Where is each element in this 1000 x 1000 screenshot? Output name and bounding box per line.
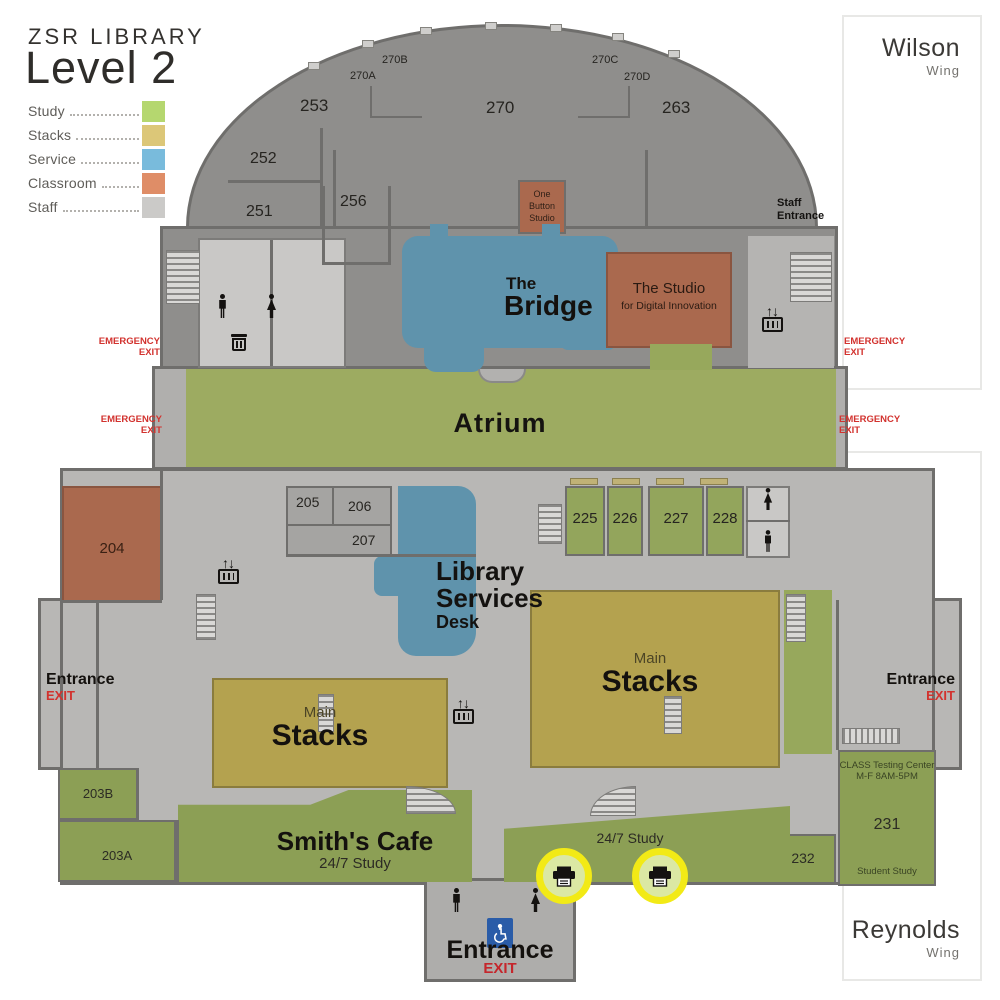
stairs (166, 250, 200, 304)
wall (333, 150, 336, 228)
legend: Study Stacks Service Classroom Staff (28, 99, 165, 219)
window-sill (570, 478, 598, 485)
atrium-label: Atrium (430, 408, 570, 439)
wall (62, 600, 162, 603)
wall (322, 186, 325, 264)
room-203a-label: 203A (58, 848, 176, 863)
legend-label: Staff (28, 199, 58, 215)
legend-leader (63, 202, 139, 212)
emergency-exit-label: EMERGENCY EXIT (60, 336, 160, 358)
room-270-label: 270 (486, 98, 514, 118)
room-270b-label: 270B (382, 54, 408, 66)
library-services-label: Library Services Desk (436, 558, 543, 633)
fountain (478, 369, 526, 383)
woman-icon (265, 294, 278, 323)
wall (746, 520, 790, 522)
room-270d-label: 270D (624, 71, 650, 83)
stairs (538, 504, 562, 544)
legend-swatch-service (142, 149, 165, 170)
legend-leader (102, 178, 139, 188)
room-253-label: 253 (300, 96, 328, 116)
legend-swatch-stacks (142, 125, 165, 146)
east-entrance-label: Entrance (835, 671, 955, 689)
west-entrance-label: Entrance (46, 671, 114, 689)
legend-item-stacks: Stacks (28, 123, 165, 147)
wall (370, 116, 422, 118)
room-227-label: 227 (648, 510, 704, 527)
legend-item-study: Study (28, 99, 165, 123)
library-services-desk-area (374, 556, 400, 596)
woman-icon (762, 488, 774, 515)
window-sill (656, 478, 684, 485)
legend-swatch-study (142, 101, 165, 122)
wall (628, 86, 630, 118)
cafe-247-study-label: 24/7 Study (240, 855, 470, 872)
room-256-label: 256 (340, 193, 367, 211)
wall (370, 86, 372, 118)
one-button-studio-label: One Button Studio (518, 188, 566, 224)
main-stacks-east-label: Main Stacks (570, 650, 730, 697)
man-icon (763, 530, 773, 557)
man-icon (451, 888, 462, 917)
wall (332, 488, 334, 524)
studio-label: The Studio for Digital Innovation (606, 280, 732, 312)
legend-swatch-classroom (142, 173, 165, 194)
room-204-label: 204 (62, 540, 162, 557)
room-232-label: 232 (770, 850, 836, 866)
bridge-area (424, 336, 484, 372)
printer-icon (648, 866, 672, 887)
room-225-label: 225 (565, 510, 605, 527)
wilson-wing-label: Wilson Wing (842, 34, 960, 78)
emergency-exit-label: EMERGENCY EXIT (62, 414, 162, 436)
window-sill (612, 33, 624, 41)
recycling-bin-icon (231, 334, 247, 351)
printer-station (536, 848, 592, 904)
room-206-label: 206 (348, 498, 371, 514)
wall (388, 186, 391, 264)
legend-swatch-staff (142, 197, 165, 218)
wall (322, 262, 391, 265)
green-patch (650, 344, 712, 370)
elevator-icon: ↑↓ (215, 558, 241, 584)
printer-station (632, 848, 688, 904)
window-sill (700, 478, 728, 485)
wall (160, 468, 163, 600)
elevator-icon: ↑↓ (450, 698, 476, 724)
room-203b-label: 203B (58, 786, 138, 801)
printer-icon (552, 866, 576, 887)
stairs (664, 696, 682, 734)
smiths-cafe-label: Smith's Cafe (240, 826, 470, 857)
emergency-exit-label: EMERGENCY EXIT (839, 414, 939, 436)
study-247-label: 24/7 Study (560, 830, 700, 846)
legend-label: Stacks (28, 127, 71, 143)
woman-icon (529, 888, 542, 917)
window-sill (612, 478, 640, 485)
legend-label: Service (28, 151, 76, 167)
window-sill (485, 22, 497, 30)
room-270a-label: 270A (350, 70, 376, 82)
student-study-label: Student Study (838, 866, 936, 877)
legend-label: Study (28, 103, 65, 119)
bridge-label-bridge: Bridge (504, 290, 593, 322)
bridge-area (430, 224, 448, 238)
reynolds-wing-label: Reynolds Wing (842, 916, 960, 960)
west-exit-label: EXIT (46, 688, 75, 703)
room-207-label: 207 (352, 532, 375, 548)
stairs (842, 728, 900, 744)
room-231-label: 231 (838, 816, 936, 834)
window-sill (668, 50, 680, 58)
window-sill (362, 40, 374, 48)
window-sill (308, 62, 320, 70)
elevator-icon: ↑↓ (759, 306, 785, 332)
wall (645, 150, 648, 228)
emergency-exit-label: EMERGENCY EXIT (844, 336, 944, 358)
wall (288, 524, 390, 526)
legend-leader (81, 154, 139, 164)
wilson-dome (186, 24, 818, 230)
window-sill (550, 24, 562, 32)
wall (176, 820, 179, 882)
room-226-label: 226 (607, 510, 643, 527)
floorplan-map: ZSR LIBRARY Level 2 Study Stacks Service… (0, 0, 1000, 1000)
man-icon (217, 294, 228, 323)
legend-item-classroom: Classroom (28, 171, 165, 195)
page-subtitle: Level 2 (25, 42, 177, 94)
wall (228, 180, 322, 183)
window-sill (420, 27, 432, 35)
room-270c-label: 270C (592, 54, 618, 66)
room-263-label: 263 (662, 98, 690, 118)
legend-item-service: Service (28, 147, 165, 171)
room-205-label: 205 (296, 494, 319, 510)
south-exit-label: EXIT (420, 960, 580, 977)
legend-item-staff: Staff (28, 195, 165, 219)
legend-leader (76, 130, 139, 140)
legend-leader (70, 106, 139, 116)
main-stacks-west-label: Main Stacks (240, 704, 400, 751)
room-252-label: 252 (250, 150, 277, 168)
testing-center-label: CLASS Testing Center M-F 8AM-5PM (838, 760, 936, 782)
legend-label: Classroom (28, 175, 97, 191)
room-251-label: 251 (246, 203, 273, 221)
wall (578, 116, 630, 118)
staff-entrance-label: Staff Entrance (777, 197, 824, 223)
room-228-label: 228 (706, 510, 744, 527)
stairs (786, 594, 806, 642)
stairs (790, 252, 832, 302)
bridge-area (542, 224, 560, 238)
stairs (196, 594, 216, 640)
east-exit-label: EXIT (835, 688, 955, 703)
